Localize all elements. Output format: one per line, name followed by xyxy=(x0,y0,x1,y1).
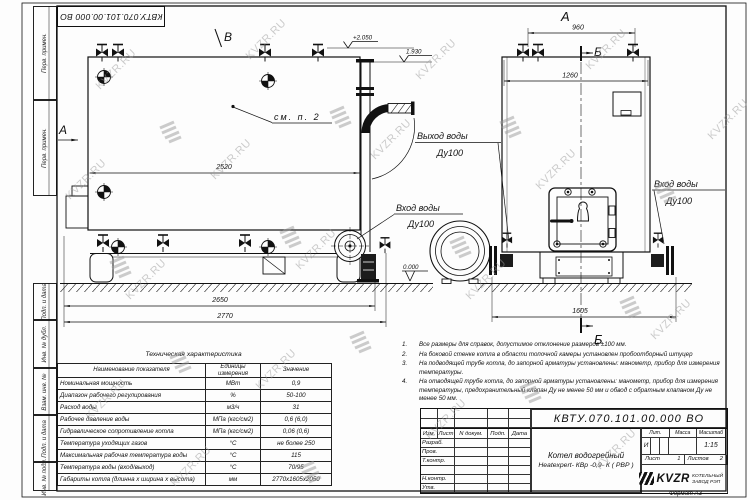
col-podp: Подп. xyxy=(488,429,509,439)
spec-table: Наименование показателя Единицы измерени… xyxy=(57,363,332,486)
watermark-text: KVZR.RU xyxy=(124,257,169,302)
table-row: Расход водым3/ч31 xyxy=(58,402,332,414)
water-inlet-dn: Ду100 xyxy=(407,219,434,229)
sheets-value: 2 xyxy=(720,456,723,462)
col-data: Дата xyxy=(509,429,531,439)
watermark-text: KVZR.RU xyxy=(369,117,414,162)
spec-name: Номинальная мощность xyxy=(58,378,206,390)
col-list: Лист xyxy=(438,429,455,439)
spec-unit: МПа (кгс/см2) xyxy=(206,414,261,426)
water-inlet-right-dn: Ду100 xyxy=(665,196,692,206)
watermark-text: KVZR.RU xyxy=(414,37,459,82)
spec-unit: % xyxy=(206,390,261,402)
spec-value: 70/95 xyxy=(261,462,332,474)
note-number: 3. xyxy=(402,360,419,376)
valve-icon xyxy=(97,235,109,252)
table-row: Температура уходящих газов°Сне более 250 xyxy=(58,438,332,450)
elevation-2050: +2.050 xyxy=(353,35,373,42)
valve-icon xyxy=(157,235,169,252)
view-v-label: В xyxy=(224,30,232,44)
margin-cell-sprav: Перв. примен. xyxy=(33,100,57,196)
spec-header-units: Единицы измерения xyxy=(206,364,261,378)
table-row: Диапазон рабочего регулирования%50-100 xyxy=(58,390,332,402)
note-item: 1.Все размеры для справок, допустимое от… xyxy=(402,341,724,349)
company-line2: ЗАВОД РЭП xyxy=(692,479,723,484)
watermark-logo-icon xyxy=(500,117,521,137)
company-line1: КОТЕЛЬНЫЙ xyxy=(692,473,723,478)
note-number: 2. xyxy=(402,351,419,359)
spec-name: Гидравлическое сопротивление котла xyxy=(58,426,206,438)
spec-value: 0,06 (0,6) xyxy=(261,426,332,438)
spec-value: 2770х1605х2050 xyxy=(261,474,332,486)
watermark-text: KVZR.RU xyxy=(209,137,254,182)
margin-label: Подп. и дата xyxy=(42,283,48,321)
section-b-top-label: Б xyxy=(594,45,602,59)
spec-value: 0,9 xyxy=(261,378,332,390)
product-name-cell: Котел водогрейный Heatexpert- КВр -0,9- … xyxy=(531,428,641,493)
note-text: На подводящей трубе котла, до запорной а… xyxy=(419,360,724,376)
datum-target-icon xyxy=(259,72,277,90)
water-outlet-dn: Ду100 xyxy=(436,148,463,158)
spec-name: Максимальная рабочая температура воды xyxy=(58,450,206,462)
mass-header: Масса xyxy=(670,429,698,438)
watermark-text: KVZR.RU xyxy=(464,257,509,302)
dim-1260: 1260 xyxy=(562,73,578,80)
spec-value: 31 xyxy=(261,402,332,414)
product-name: Котел водогрейный xyxy=(532,451,640,460)
row-utv: Утв. xyxy=(421,484,455,493)
spec-unit: МПа (кгс/см2) xyxy=(206,426,261,438)
water-outlet-label: Выход воды xyxy=(417,131,468,141)
dim-2650: 2650 xyxy=(211,297,228,304)
scale-header: Масштаб xyxy=(697,429,726,438)
dim-960: 960 xyxy=(572,25,584,32)
spec-name: Диапазон рабочего регулирования xyxy=(58,390,206,402)
doc-number-top-box: КВТУ.070.101.00.000 ВО xyxy=(57,6,165,27)
elevation-1930: 1.930 xyxy=(406,49,422,56)
table-row: Максимальная рабочая температура воды°С1… xyxy=(58,450,332,462)
watermark-logo-icon xyxy=(620,297,641,317)
dim-1605: 1605 xyxy=(572,308,588,315)
spec-unit: МВт xyxy=(206,378,261,390)
watermark-text: KVZR.RU xyxy=(584,27,629,72)
signature-grid: Изм. Лист N докум. Подп. Дата Разраб. Пр… xyxy=(421,428,531,493)
scale-value: 1:15 xyxy=(697,438,726,456)
bolt-icon xyxy=(554,189,606,247)
margin-label: Перв. примен. xyxy=(42,33,48,73)
water-inlet-label: Вход воды xyxy=(396,203,440,213)
blower-fan xyxy=(430,221,490,284)
spec-name: Рабочее давление воды xyxy=(58,414,206,426)
margin-cell-inv-podl: Инв. № подл. xyxy=(33,462,57,491)
valve-icon xyxy=(239,235,251,252)
datum-target-icon xyxy=(95,183,113,201)
margin-cell-podp-data-1: Подп. и дата xyxy=(33,283,57,320)
note-text: Все размеры для справок, допустимое откл… xyxy=(419,341,626,349)
spec-value: 115 xyxy=(261,450,332,462)
spec-value: не более 250 xyxy=(261,438,332,450)
note-text: На боковой стенке котла в области топочн… xyxy=(419,351,693,359)
drawing-sheet: Перв. примен. Перв. примен. Подп. и дата… xyxy=(0,0,750,500)
spec-unit: °С xyxy=(206,462,261,474)
water-inlet-right-label: Вход воды xyxy=(654,179,698,189)
table-row: Гидравлическое сопротивление котлаМПа (к… xyxy=(58,426,332,438)
valve-icon xyxy=(502,233,512,247)
spec-header-name: Наименование показателя xyxy=(58,364,206,378)
row-tkontr: Т.контр. xyxy=(421,457,455,466)
kvzr-logo-icon xyxy=(639,472,654,485)
product-type: Heatexpert- КВр -0,9- К ( РВР ) xyxy=(532,462,640,469)
lit-mass-scale-block: Лит. Масса Масштаб И 1:15 Лист 1 Листов … xyxy=(641,428,727,493)
watermark-logo-icon xyxy=(280,227,301,247)
dim-2770: 2770 xyxy=(216,313,233,320)
pipe-callouts: Выход воды Ду100 Вход воды Ду100 Вход во… xyxy=(357,131,725,244)
kvzr-logo-text: KVZR xyxy=(656,473,689,485)
margin-cell-vzam-inv: Взам. инв. № xyxy=(33,368,57,415)
spec-unit: °С xyxy=(206,438,261,450)
spec-header-row: Наименование показателя Единицы измерени… xyxy=(58,364,332,378)
lit-header: Лит. xyxy=(642,429,670,438)
spec-header-value: Значение xyxy=(261,364,332,378)
col-ndoc: N докум. xyxy=(455,429,488,439)
valve-icon xyxy=(112,45,124,62)
note-item: 3.На подводящей трубе котла, до запорной… xyxy=(402,360,724,376)
row-nkontr: Н.контр. xyxy=(421,475,455,484)
margin-label: Перв. примен. xyxy=(42,128,48,168)
view-a-top-label: А xyxy=(560,9,570,24)
spec-unit: мм xyxy=(206,474,261,486)
watermark-text: KVZR.RU xyxy=(64,157,109,202)
watermark-logo-icon xyxy=(350,332,371,352)
watermark-text: KVZR.RU xyxy=(534,147,579,192)
boiler-side-view xyxy=(60,45,433,293)
margin-label: Инв. № дубл. xyxy=(42,326,48,363)
dimensions: 2520 2650 2770 960 1260 1605 xyxy=(64,25,676,328)
title-block: КВТУ.070.101.00.000 ВО Изм. Лист N докум… xyxy=(420,408,728,494)
valve-icon xyxy=(627,45,639,62)
note-number: 4. xyxy=(402,378,419,403)
spec-value: 0,6 (6,0) xyxy=(261,414,332,426)
margin-label: Подп. и дата xyxy=(42,420,48,458)
margin-cell-perv-primen: Перв. примен. xyxy=(33,6,57,100)
view-labels: А А Б Б В см. п. 2 xyxy=(58,9,603,347)
watermark-logo-icon xyxy=(110,257,131,277)
valve-icon xyxy=(380,238,391,253)
note-item: 4.На отводящей трубе котла, до запорной … xyxy=(402,378,724,403)
table-row: Номинальная мощностьМВт0,9 xyxy=(58,378,332,390)
row-prov: Пров. xyxy=(421,448,455,457)
watermark-logo-icon xyxy=(655,182,676,202)
elevation-0000: 0.000 xyxy=(403,264,419,271)
spec-name: Температура воды (вход/выход) xyxy=(58,462,206,474)
datum-target-icon xyxy=(109,238,127,256)
watermark-logo-icon xyxy=(160,122,181,142)
elevation-marks: +2.050 1.930 0.000 xyxy=(327,35,432,282)
watermark-text: KVZR.RU xyxy=(94,47,139,92)
valve-icon xyxy=(653,233,663,247)
dim-2520: 2520 xyxy=(215,164,232,171)
spec-unit: м3/ч xyxy=(206,402,261,414)
boiler-front-view xyxy=(478,45,692,334)
lit-value: И xyxy=(642,438,651,456)
margin-label: Взам. инв. № xyxy=(42,373,48,410)
watermark-text: KVZR.RU xyxy=(244,17,289,62)
watermark-logo-icon xyxy=(450,237,471,257)
sheets-label: Листов xyxy=(688,456,709,462)
margin-cell-podp-data-2: Подп. и дата xyxy=(33,415,57,462)
row-razrab: Разраб. xyxy=(421,439,455,448)
doc-number-cell: КВТУ.070.101.00.000 ВО xyxy=(531,409,727,428)
valve-icon xyxy=(312,45,324,62)
spec-name: Температура уходящих газов xyxy=(58,438,206,450)
valve-icon xyxy=(517,45,529,62)
watermark-text: KVZR.RU xyxy=(649,297,694,342)
notes-block: 1.Все размеры для справок, допустимое от… xyxy=(402,341,724,404)
note-item: 2.На боковой стенке котла в области топо… xyxy=(402,351,724,359)
format-label: Формат А3 xyxy=(645,491,726,497)
valve-icon xyxy=(96,45,108,62)
datum-target-icon xyxy=(95,68,113,86)
spec-name: Расход воды xyxy=(58,402,206,414)
spec-name: Габариты котла (длинна х ширина х высота… xyxy=(58,474,206,486)
spec-table-title: Техническая характеристика xyxy=(57,351,330,358)
note-number: 1. xyxy=(402,341,419,349)
note-text: На отводящей трубе котла, до запорной ар… xyxy=(419,378,724,403)
valve-icon xyxy=(532,45,544,62)
watermark-logo-icon xyxy=(330,107,351,127)
view-a-side-label: А xyxy=(58,123,67,137)
sheet-label: Лист xyxy=(645,456,660,462)
col-izm: Изм. xyxy=(421,429,438,439)
see-note-label: см. п. 2 xyxy=(274,112,321,122)
watermark-text: KVZR.RU xyxy=(706,97,750,142)
margin-label: Инв. № подл. xyxy=(42,458,48,495)
spec-value: 50-100 xyxy=(261,390,332,402)
revision-grid xyxy=(421,409,531,428)
spec-unit: °С xyxy=(206,450,261,462)
watermark-text: KVZR.RU xyxy=(294,227,339,272)
row-empty xyxy=(421,466,455,475)
table-row: Рабочее давление водыМПа (кгс/см2)0,6 (6… xyxy=(58,414,332,426)
table-row: Габариты котла (длинна х ширина х высота… xyxy=(58,474,332,486)
sheet-value: 1 xyxy=(677,456,680,462)
table-row: Температура воды (вход/выход)°С70/95 xyxy=(58,462,332,474)
margin-cell-inv-dubl: Инв. № дубл. xyxy=(33,320,57,368)
doc-number-rotated: КВТУ.070.101.00.000 ВО xyxy=(60,12,163,22)
datum-target-icon xyxy=(259,238,277,256)
valve-icon xyxy=(259,45,271,62)
